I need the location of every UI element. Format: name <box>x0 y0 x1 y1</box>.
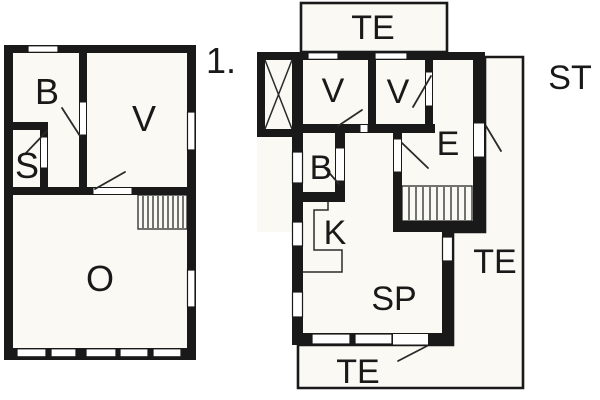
stairs-icon <box>138 195 187 229</box>
room-label-v2: V <box>387 73 410 111</box>
room-label-s: S <box>15 145 39 186</box>
room-label-b: B <box>310 149 333 187</box>
room-label-e: E <box>437 125 460 163</box>
floor-plan-canvas: B V S O <box>0 0 600 400</box>
room-label-k: K <box>324 214 347 252</box>
room-label-b: B <box>35 71 59 112</box>
label-st: ST <box>548 59 591 97</box>
stairs-icon <box>402 186 472 221</box>
room-label-te-right: TE <box>473 243 516 281</box>
floor-plan-figure: B V S O <box>0 0 600 400</box>
room-label-v: V <box>132 98 156 139</box>
floor-number-label: 1. <box>206 40 236 81</box>
room-label-te-bottom: TE <box>336 353 379 391</box>
room-label-te-top: TE <box>351 9 394 47</box>
upper-floor-plan: 1. TE V V E B K SP TE TE ST <box>206 9 592 391</box>
room-label-sp: SP <box>371 280 416 318</box>
room-label-v1: V <box>322 72 345 110</box>
ground-floor-plan: B V S O <box>4 45 196 360</box>
room-label-o: O <box>86 258 114 299</box>
